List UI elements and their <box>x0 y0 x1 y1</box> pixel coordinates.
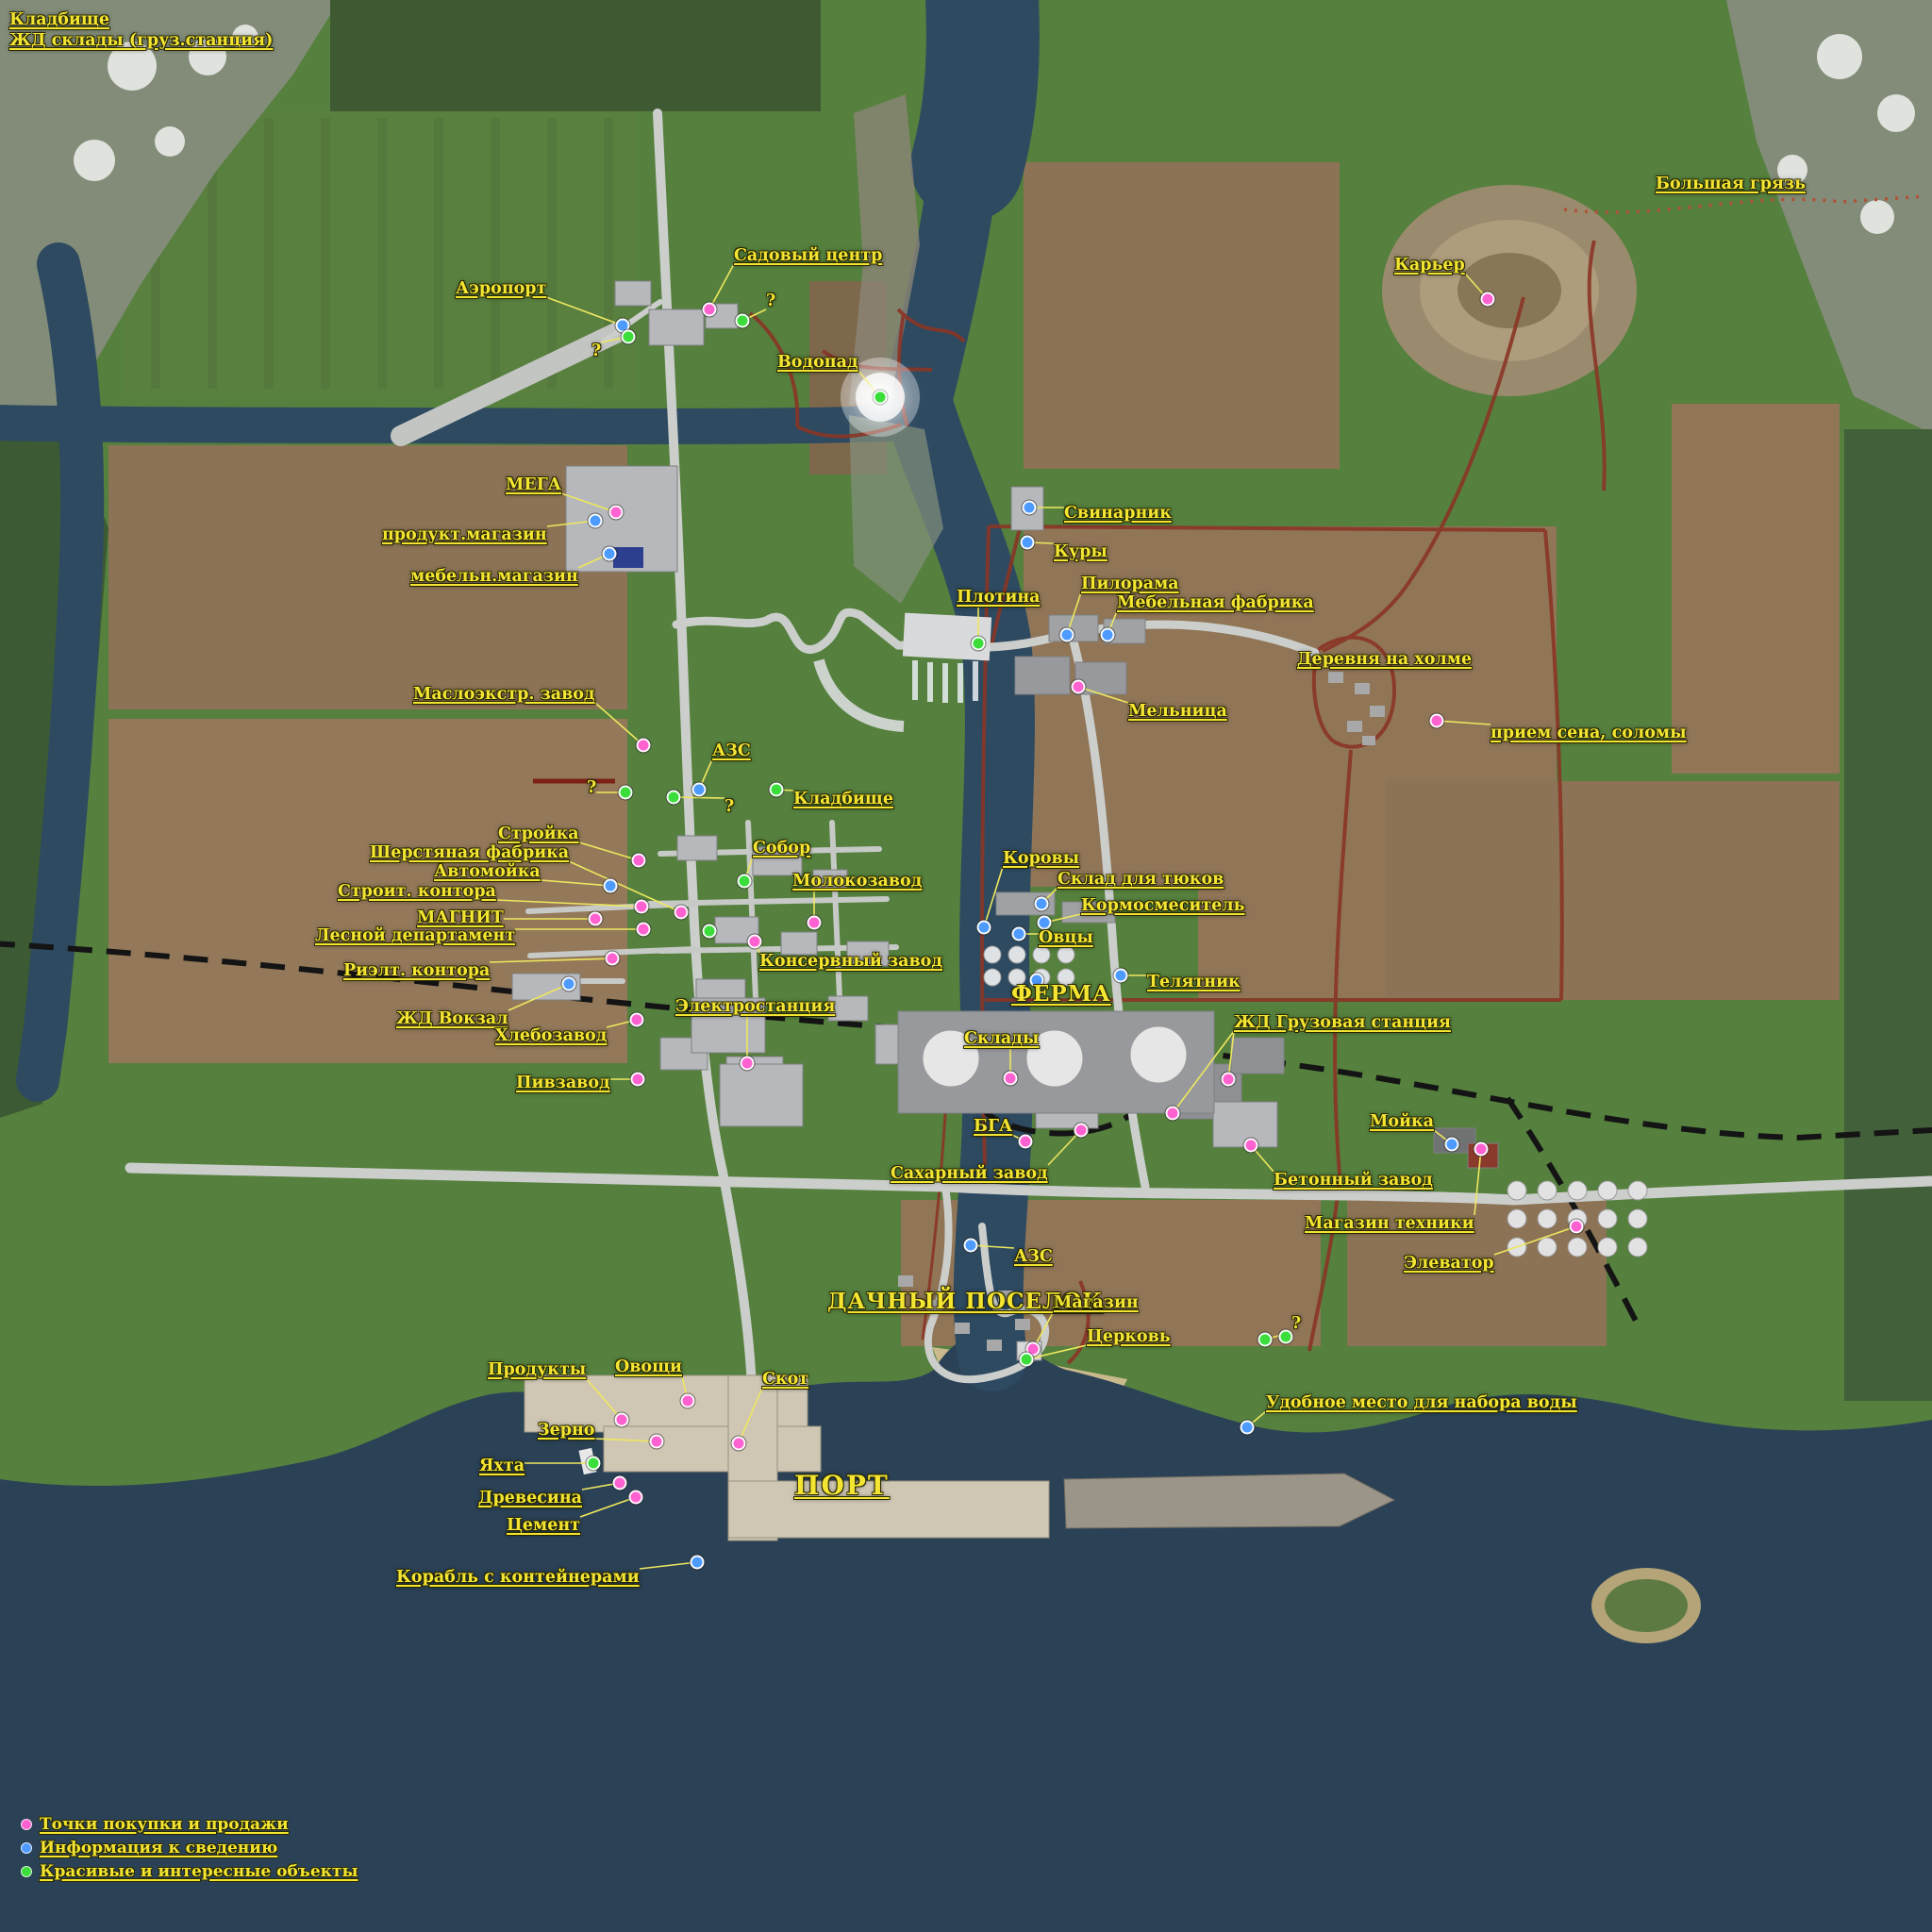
pink-dot-construction <box>632 854 646 868</box>
pink-dot-dairy-plant <box>808 916 822 930</box>
map-label-livestock: Скот <box>762 1371 808 1388</box>
pink-dot-mill <box>1072 680 1086 694</box>
pink-dot-quarry <box>1481 292 1495 307</box>
map-label-container-ship: Корабль с контейнерами <box>396 1569 640 1586</box>
map-label-brewery: Пивзавод <box>516 1074 610 1091</box>
pink-dot-grain <box>650 1435 664 1449</box>
pink-dot-vegetables <box>681 1394 695 1408</box>
pink-dot-food-sale <box>615 1413 629 1427</box>
map-label-wool-factory: Шерстяная фабрика <box>370 844 569 861</box>
legend-label: Красивые и интересные объекты <box>40 1862 358 1881</box>
map-label-pigsty: Свинарник <box>1064 505 1172 522</box>
map-label-corner-rail-depot: ЖД склады (груз.станция) <box>9 32 273 49</box>
map-label-sugar-factory: Сахарный завод <box>891 1165 1048 1182</box>
green-dot-garden-question <box>736 314 750 328</box>
blue-dot-furniture-factory <box>1101 628 1115 642</box>
pink-dot-builders-office <box>635 900 649 914</box>
map-label-feed-mixer: Кормосмеситель <box>1081 897 1245 914</box>
map-label-hay-straw: прием сена, соломы <box>1491 724 1687 741</box>
green-dot-airport-question <box>622 330 636 344</box>
map-label-mill: Мельница <box>1128 703 1227 720</box>
pink-dot-warehouses <box>1004 1072 1018 1086</box>
blue-dot-sawmill <box>1060 628 1074 642</box>
blue-legend-dot <box>21 1842 32 1854</box>
pink-dot-bga <box>1019 1135 1033 1149</box>
map-label-dairy-plant: Молокозавод <box>792 873 922 890</box>
blue-dot-water-fill-spot <box>1241 1421 1255 1435</box>
legend-item-1: Информация к сведению <box>21 1836 358 1859</box>
green-dot-dam <box>972 637 986 651</box>
green-dot-church <box>1020 1353 1034 1367</box>
map-label-church: Церковь <box>1087 1328 1171 1345</box>
blue-dot-container-ship <box>691 1556 705 1570</box>
blue-dot-carwash <box>604 879 618 893</box>
legend-item-0: Точки покупки и продажи <box>21 1812 358 1836</box>
map-label-shop: Магазин <box>1054 1294 1139 1311</box>
map-label-big-mud: Большая грязь <box>1656 175 1806 192</box>
map-label-builders-office: Строит. контора <box>338 883 496 900</box>
blue-dot-calf-barn <box>1114 969 1128 983</box>
legend-item-2: Красивые и интересные объекты <box>21 1859 358 1883</box>
map-label-corner-cemetery: Кладбище <box>9 11 109 28</box>
pink-dot-bread-factory <box>630 1013 644 1027</box>
map-label-forestry-dept: Лесной департамент <box>315 927 515 944</box>
pink-dot-power-plant <box>741 1057 755 1071</box>
markers-layer: КладбищеЖД склады (груз.станция)Аэропорт… <box>0 0 1932 1932</box>
map-label-cemetery-city: Кладбище <box>793 791 893 808</box>
map-label-bread-factory: Хлебозавод <box>495 1027 607 1044</box>
map-label-question-1: ? <box>587 779 596 796</box>
blue-dot-pigsty <box>1023 501 1037 515</box>
green-dot-cemetery-city <box>770 783 784 797</box>
pink-dot-freight-station <box>1166 1107 1180 1121</box>
map-label-question-2: ? <box>724 798 734 815</box>
pink-legend-dot <box>21 1819 32 1830</box>
blue-dot-gas-station-1 <box>692 783 707 797</box>
pink-dot-forestry-dept <box>637 923 651 937</box>
map-label-port: ПОРТ <box>794 1472 890 1499</box>
map-label-furniture-factory: Мебельная фабрика <box>1117 594 1314 611</box>
map-label-freight-station: ЖД Грузовая станция <box>1234 1014 1451 1031</box>
green-dot-question-1 <box>619 786 633 800</box>
map-label-power-plant: Электростанция <box>675 998 835 1015</box>
pink-dot-elevator <box>1570 1220 1584 1234</box>
map-label-warehouses: Склады <box>964 1030 1039 1047</box>
map-label-realtor-office: Риэлт. контора <box>343 962 490 979</box>
map-label-water-fill-spot: Удобное место для набора воды <box>1266 1394 1577 1411</box>
map-label-construction: Стройка <box>498 825 579 842</box>
green-dot-green-unlabeled <box>703 924 717 939</box>
blue-dot-cows <box>977 921 991 935</box>
map-label-vehicle-wash: Мойка <box>1370 1113 1434 1130</box>
blue-dot-vehicle-wash <box>1445 1138 1459 1152</box>
pink-dot-sugar-factory <box>1074 1124 1089 1138</box>
pink-dot-magnit <box>589 912 603 926</box>
pink-dot-garden-center <box>703 303 717 317</box>
map-label-airport-question: ? <box>591 342 601 359</box>
map-label-sawmill: Пилорама <box>1081 575 1179 592</box>
legend: Точки покупки и продажиИнформация к свед… <box>21 1812 358 1883</box>
pink-dot-cement <box>629 1491 643 1505</box>
map-label-sheep: Овцы <box>1039 929 1093 946</box>
map-label-cathedral: Собор <box>753 840 810 857</box>
map-label-quarry: Карьер <box>1394 257 1465 274</box>
green-legend-dot <box>21 1866 32 1877</box>
blue-dot-rail-station <box>562 977 576 991</box>
map-label-bale-storage: Склад для тюков <box>1058 871 1224 888</box>
green-dot-yacht <box>587 1457 601 1471</box>
pink-dot-wool-factory <box>675 906 689 920</box>
green-dot-waterfall <box>874 391 888 405</box>
map-label-bga: БГА <box>974 1118 1012 1135</box>
map-label-equipment-shop: Магазин техники <box>1305 1215 1474 1232</box>
game-map: КладбищеЖД склады (груз.станция)Аэропорт… <box>0 0 1932 1932</box>
pink-dot-wood-sale <box>613 1476 627 1491</box>
map-label-garden-center: Садовый центр <box>734 247 882 264</box>
map-label-food-sale: Продукты <box>488 1361 586 1378</box>
map-label-dam: Плотина <box>957 589 1041 606</box>
map-label-question-3: ? <box>1291 1315 1301 1332</box>
map-label-gas-station-2: АЗС <box>1014 1248 1053 1265</box>
pink-dot-equipment-shop <box>1474 1142 1489 1157</box>
map-label-wood-sale: Древесина <box>478 1490 582 1507</box>
map-label-chickens: Куры <box>1054 543 1108 560</box>
map-label-garden-question: ? <box>766 292 775 309</box>
map-label-oil-plant: Маслоэкстр. завод <box>413 686 595 703</box>
blue-dot-sheep <box>1012 927 1026 941</box>
pink-dot-mega <box>609 506 624 520</box>
map-label-magnit: МАГНИТ <box>417 909 504 926</box>
pink-dot-oil-plant <box>637 739 651 753</box>
map-label-airport: Аэропорт <box>456 280 546 297</box>
map-label-gas-station-1: АЗС <box>712 742 751 759</box>
pink-dot-cannery <box>748 935 762 949</box>
map-label-hill-village: Деревня на холме <box>1297 651 1472 668</box>
blue-dot-gas-station-2 <box>964 1239 978 1253</box>
green-dot-question-3 <box>1258 1333 1273 1347</box>
map-label-mega: МЕГА <box>506 476 561 493</box>
legend-label: Информация к сведению <box>40 1839 277 1857</box>
green-dot-cathedral <box>738 874 752 889</box>
map-label-mega-grocery: продукт.магазин <box>382 526 547 543</box>
pink-dot-concrete-plant <box>1244 1139 1258 1153</box>
map-label-mega-furniture: мебельн.магазин <box>410 568 578 585</box>
blue-dot-mega-grocery <box>589 514 603 528</box>
blue-dot-bale-storage <box>1035 897 1049 911</box>
blue-dot-mega-furniture <box>603 547 617 561</box>
map-label-cannery: Консервный завод <box>759 953 942 970</box>
map-label-farm: ФЕРМА <box>1011 983 1111 1006</box>
map-label-carwash: Автомойка <box>434 863 541 880</box>
map-label-grain: Зерно <box>538 1422 594 1439</box>
map-label-waterfall: Водопад <box>777 354 858 371</box>
blue-dot-chickens <box>1021 536 1035 550</box>
legend-label: Точки покупки и продажи <box>40 1815 289 1834</box>
pink-dot-brewery <box>631 1073 645 1087</box>
map-label-calf-barn: Телятник <box>1147 974 1241 991</box>
map-label-cows: Коровы <box>1003 850 1079 867</box>
map-label-rail-station: ЖД Вокзал <box>396 1010 508 1027</box>
map-label-concrete-plant: Бетонный завод <box>1274 1172 1433 1189</box>
pink-dot-livestock <box>732 1437 746 1451</box>
map-label-cement: Цемент <box>507 1517 580 1534</box>
map-label-elevator: Элеватор <box>1404 1255 1494 1272</box>
map-label-vegetables: Овощи <box>615 1358 682 1375</box>
green-dot-question-2 <box>667 791 681 805</box>
pink-dot-realtor-office <box>606 952 620 966</box>
pink-dot-hay-straw <box>1430 714 1444 728</box>
map-label-yacht: Яхта <box>479 1457 525 1474</box>
pink-dot-freight-station <box>1222 1073 1236 1087</box>
